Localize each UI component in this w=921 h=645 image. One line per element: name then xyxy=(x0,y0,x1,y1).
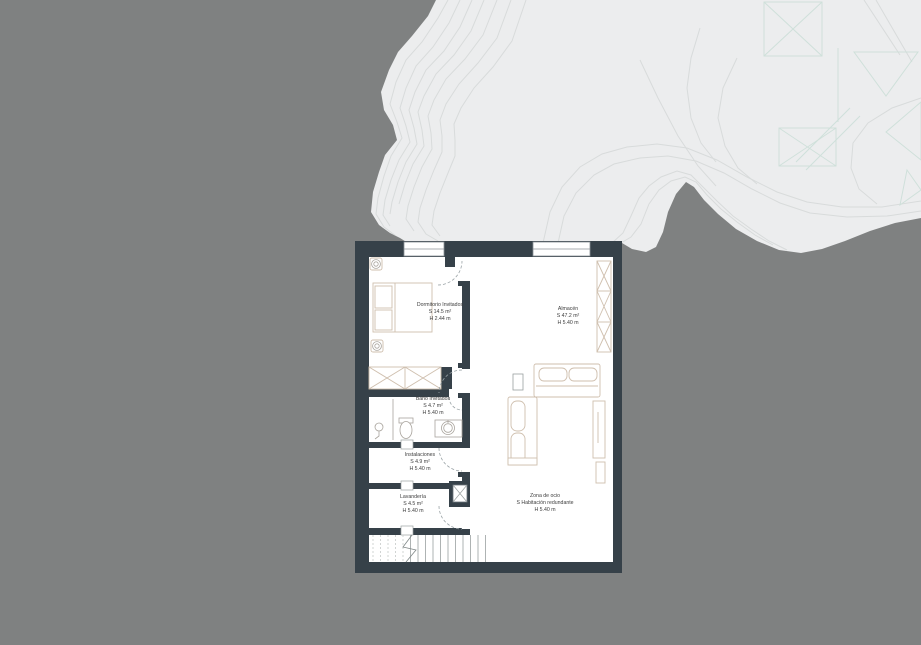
room-label-instalaciones: Instalaciones S 4.9 m² H 5.40 m xyxy=(380,452,460,474)
room-area: S Habitación redundante xyxy=(495,500,595,507)
room-height: H 5.40 m xyxy=(373,508,453,515)
window xyxy=(533,242,590,256)
door-opening xyxy=(462,448,470,472)
wardrobe xyxy=(369,367,441,389)
room-height: H 5.40 m xyxy=(393,410,473,417)
door-opening xyxy=(462,369,470,393)
room-height: H 2.44 m xyxy=(400,316,480,323)
sofa-horizontal xyxy=(534,364,600,397)
room-label-zona-de-ocio: Zona de ocio S Habitación redundante H 5… xyxy=(495,493,595,515)
room-area: S 47.2 m² xyxy=(528,313,608,320)
wall-vent xyxy=(401,526,413,535)
room-name: Lavandería xyxy=(373,494,453,501)
ceiling-light-icon xyxy=(371,340,383,352)
room-area: S 4.7 m² xyxy=(393,403,473,410)
room-area: S 14.5 m² xyxy=(400,309,480,316)
wall-vent xyxy=(401,481,413,490)
room-almacen-zona-floor xyxy=(470,257,613,562)
room-name: Baño Invitados xyxy=(393,396,473,403)
window xyxy=(404,242,444,256)
door-opening xyxy=(462,505,470,529)
sofa-vertical xyxy=(508,397,537,465)
door-opening xyxy=(462,257,470,285)
room-label-dormitorio: Dormitorio Invitados S 14.5 m² H 2.44 m xyxy=(400,302,480,324)
room-area: S 4.9 m² xyxy=(380,459,460,466)
room-height: H 5.40 m xyxy=(528,320,608,327)
toilet xyxy=(399,418,413,439)
room-label-bano: Baño Invitados S 4.7 m² H 5.40 m xyxy=(393,396,473,418)
room-name: Almacén xyxy=(528,306,608,313)
wall-vent xyxy=(401,440,413,449)
room-name: Zona de ocio xyxy=(495,493,595,500)
room-name: Instalaciones xyxy=(380,452,460,459)
floor-plan: Dormitorio Invitados S 14.5 m² H 2.44 m … xyxy=(355,241,622,573)
room-label-lavanderia: Lavandería S 4.5 m² H 5.40 m xyxy=(373,494,453,516)
floorplan-viewport: Dormitorio Invitados S 14.5 m² H 2.44 m … xyxy=(0,0,921,645)
terrain-ground xyxy=(371,0,921,253)
room-label-almacen: Almacén S 47.2 m² H 5.40 m xyxy=(528,306,608,328)
ceiling-light-icon xyxy=(370,258,382,270)
room-name: Dormitorio Invitados xyxy=(400,302,480,309)
room-height: H 5.40 m xyxy=(380,466,460,473)
room-area: S 4.5 m² xyxy=(373,501,453,508)
sink-vanity xyxy=(435,420,462,437)
side-table xyxy=(513,374,523,390)
room-height: H 5.40 m xyxy=(495,507,595,514)
